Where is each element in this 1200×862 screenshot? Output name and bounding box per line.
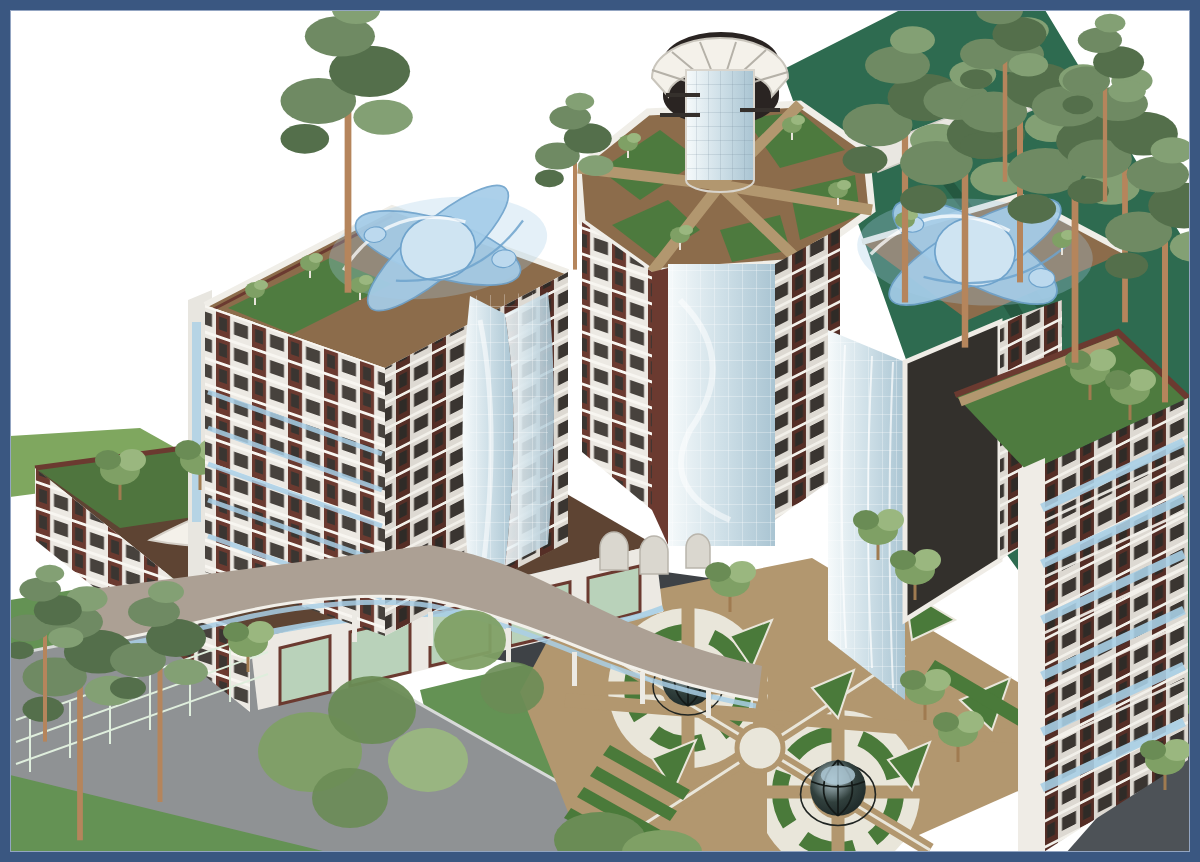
frame-inner-line [10, 10, 1190, 852]
rendering-page [0, 0, 1200, 862]
